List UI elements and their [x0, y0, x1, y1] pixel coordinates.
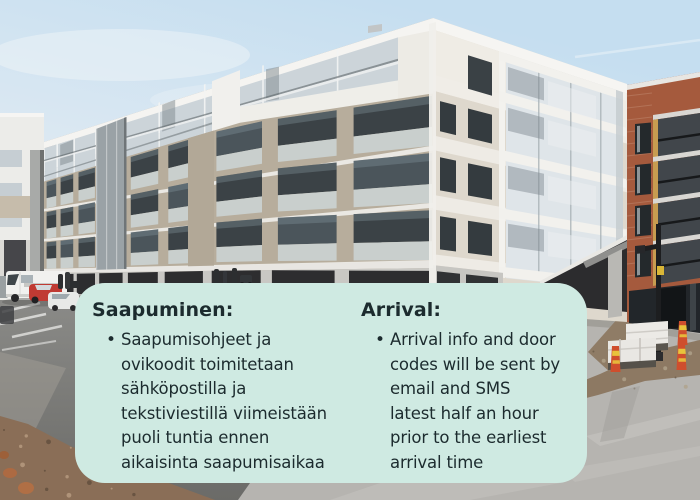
bullet-item-finnish: • Saapumisohjeet ja ovikoodit toimitetaa…: [92, 328, 361, 475]
bullet-icon: •: [106, 328, 121, 353]
section-heading-finnish: Saapuminen:: [92, 299, 361, 322]
brick-building: [627, 72, 700, 333]
bullet-icon: •: [375, 328, 390, 353]
info-card-section-finnish: Saapuminen: • Saapumisohjeet ja ovikoodi…: [92, 299, 361, 483]
section-text-english: Arrival info and door codes will be sent…: [390, 328, 560, 475]
screenshot-root: Saapuminen: • Saapumisohjeet ja ovikoodi…: [0, 0, 700, 500]
info-card-section-english: Arrival: • Arrival info and door codes w…: [361, 299, 573, 483]
section-heading-english: Arrival:: [361, 299, 573, 322]
info-card: Saapuminen: • Saapumisohjeet ja ovikoodi…: [75, 283, 587, 483]
bullet-item-english: • Arrival info and door codes will be se…: [361, 328, 573, 475]
section-text-finnish: Saapumisohjeet ja ovikoodit toimitetaan …: [121, 328, 327, 475]
